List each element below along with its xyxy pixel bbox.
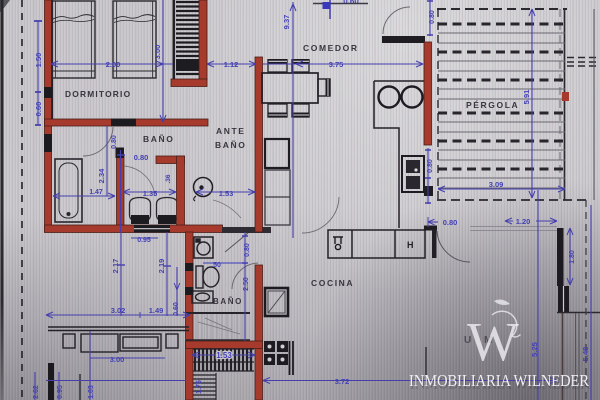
svg-text:0.80: 0.80 xyxy=(429,10,436,24)
svg-text:2.50: 2.50 xyxy=(243,277,250,291)
svg-text:0.80: 0.80 xyxy=(111,135,118,149)
svg-text:2.19: 2.19 xyxy=(157,259,166,274)
svg-text:9.37: 9.37 xyxy=(282,15,291,30)
svg-text:1.49: 1.49 xyxy=(149,306,164,315)
svg-text:1.03: 1.03 xyxy=(88,385,95,399)
svg-text:1.50: 1.50 xyxy=(34,53,43,68)
svg-text:BAÑO: BAÑO xyxy=(213,297,243,306)
svg-text:2.17: 2.17 xyxy=(111,259,120,274)
svg-text:5.48: 5.48 xyxy=(581,347,590,362)
svg-text:W: W xyxy=(467,311,519,372)
svg-text:COMEDOR: COMEDOR xyxy=(303,43,359,53)
svg-text:DORMITORIO: DORMITORIO xyxy=(65,89,131,99)
svg-text:3.72: 3.72 xyxy=(335,377,350,386)
svg-text:1.20: 1.20 xyxy=(516,217,531,226)
svg-text:0.80: 0.80 xyxy=(134,153,149,162)
svg-text:1.53: 1.53 xyxy=(216,351,232,360)
svg-text:1.80: 1.80 xyxy=(569,250,576,264)
svg-text:0.95: 0.95 xyxy=(57,385,64,399)
svg-text:BAÑO: BAÑO xyxy=(215,140,246,150)
svg-text:0.80: 0.80 xyxy=(427,159,434,173)
svg-text:1.75: 1.75 xyxy=(196,380,203,394)
svg-text:2.62: 2.62 xyxy=(33,385,40,399)
svg-text:0.95: 0.95 xyxy=(137,237,151,244)
svg-text:0.80: 0.80 xyxy=(443,218,458,227)
svg-text:H: H xyxy=(407,240,414,250)
svg-text:5.25: 5.25 xyxy=(530,342,539,357)
svg-text:2.00: 2.00 xyxy=(106,60,121,69)
svg-text:ANTE: ANTE xyxy=(216,126,246,136)
svg-text:1.12: 1.12 xyxy=(224,60,239,69)
svg-text:5.91: 5.91 xyxy=(522,90,531,105)
svg-text:3.00: 3.00 xyxy=(153,45,162,60)
svg-text:PÉRGOLA: PÉRGOLA xyxy=(466,100,519,110)
svg-text:1.47: 1.47 xyxy=(89,189,103,196)
svg-text:BAÑO: BAÑO xyxy=(143,134,174,144)
svg-text:1.35: 1.35 xyxy=(143,189,158,198)
svg-text:COCINA: COCINA xyxy=(311,278,354,288)
svg-text:.36: .36 xyxy=(165,174,172,183)
svg-text:3.75: 3.75 xyxy=(329,60,344,69)
svg-text:2.34: 2.34 xyxy=(97,168,106,183)
svg-text:.50: .50 xyxy=(211,262,221,269)
svg-text:3.09: 3.09 xyxy=(489,180,504,189)
svg-text:INMOBILIARIA WILNEDER: INMOBILIARIA WILNEDER xyxy=(409,371,590,390)
svg-text:0.60: 0.60 xyxy=(34,102,43,117)
svg-text:1.53: 1.53 xyxy=(219,189,234,198)
svg-text:0.60: 0.60 xyxy=(173,302,180,316)
svg-text:0.80: 0.80 xyxy=(244,243,251,257)
svg-text:3.02: 3.02 xyxy=(111,306,126,315)
svg-text:3.00: 3.00 xyxy=(110,355,125,364)
